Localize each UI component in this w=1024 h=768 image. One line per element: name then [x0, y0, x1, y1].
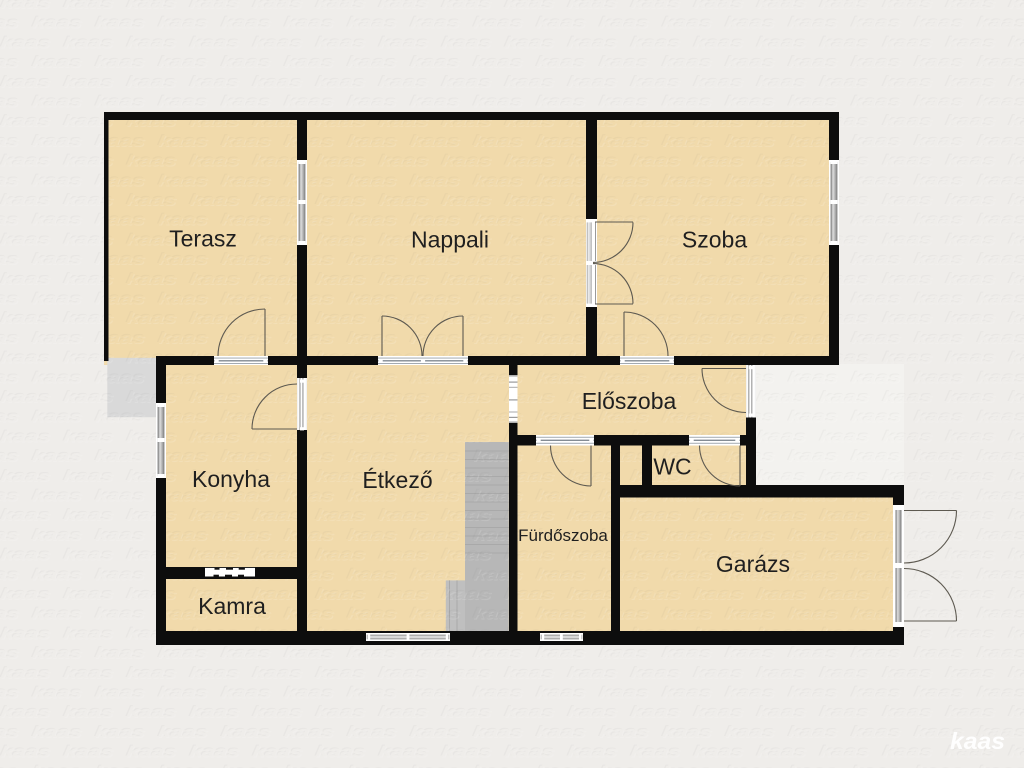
svg-text:kaas: kaas	[1007, 704, 1024, 721]
svg-text:kaas: kaas	[692, 153, 744, 170]
svg-text:kaas: kaas	[220, 369, 272, 386]
svg-text:kaas: kaas	[220, 685, 272, 702]
svg-text:kaas: kaas	[472, 133, 524, 150]
svg-text:kaas: kaas	[535, 724, 587, 741]
svg-text:kaas: kaas	[787, 54, 839, 71]
svg-text:kaas: kaas	[661, 763, 713, 768]
svg-text:kaas: kaas	[913, 133, 965, 150]
svg-text:kaas: kaas	[913, 251, 965, 268]
svg-text:kaas: kaas	[409, 172, 461, 189]
svg-text:kaas: kaas	[314, 428, 366, 445]
svg-text:kaas: kaas	[0, 448, 20, 465]
svg-text:kaas: kaas	[94, 527, 146, 544]
svg-text:kaas: kaas	[598, 724, 650, 741]
svg-text:kaas: kaas	[377, 744, 429, 761]
svg-text:kaas: kaas	[94, 606, 146, 623]
svg-text:kaas: kaas	[818, 744, 870, 761]
svg-text:kaas: kaas	[976, 54, 1024, 71]
svg-text:kaas: kaas	[188, 74, 240, 91]
svg-text:kaas: kaas	[535, 448, 587, 465]
svg-text:kaas: kaas	[0, 645, 20, 662]
svg-text:kaas: kaas	[0, 547, 52, 564]
svg-text:kaas: kaas	[976, 133, 1024, 150]
svg-text:kaas: kaas	[31, 172, 83, 189]
svg-text:kaas: kaas	[62, 507, 114, 524]
svg-text:kaas: kaas	[377, 507, 429, 524]
svg-text:kaas: kaas	[1007, 586, 1024, 603]
svg-text:kaas: kaas	[913, 330, 965, 347]
svg-text:kaas: kaas	[1007, 389, 1024, 406]
svg-text:kaas: kaas	[724, 54, 776, 71]
svg-text:kaas: kaas	[1007, 113, 1024, 130]
svg-text:kaas: kaas	[125, 744, 177, 761]
svg-text:kaas: kaas	[31, 330, 83, 347]
svg-text:kaas: kaas	[724, 172, 776, 189]
svg-text:kaas: kaas	[755, 428, 807, 445]
svg-text:kaas: kaas	[283, 448, 335, 465]
svg-text:kaas: kaas	[503, 665, 555, 682]
svg-text:kaas: kaas	[0, 409, 20, 426]
svg-text:kaas: kaas	[881, 547, 933, 564]
svg-text:kaas: kaas	[409, 409, 461, 426]
svg-text:kaas: kaas	[535, 15, 587, 32]
svg-text:kaas: kaas	[94, 172, 146, 189]
svg-text:kaas: kaas	[913, 645, 965, 662]
svg-text:kaas: kaas	[0, 369, 20, 386]
svg-text:kaas: kaas	[913, 54, 965, 71]
svg-text:kaas: kaas	[503, 34, 555, 51]
svg-text:kaas: kaas	[692, 192, 744, 209]
svg-text:kaas: kaas	[409, 251, 461, 268]
svg-text:kaas: kaas	[472, 15, 524, 32]
svg-text:kaas: kaas	[755, 310, 807, 327]
svg-text:kaas: kaas	[787, 448, 839, 465]
svg-text:kaas: kaas	[125, 586, 177, 603]
svg-text:kaas: kaas	[62, 74, 114, 91]
svg-text:kaas: kaas	[944, 507, 996, 524]
svg-text:kaas: kaas	[881, 744, 933, 761]
svg-text:kaas: kaas	[566, 0, 618, 12]
svg-text:kaas: kaas	[755, 231, 807, 248]
svg-text:kaas: kaas	[881, 665, 933, 682]
svg-text:kaas: kaas	[692, 744, 744, 761]
svg-text:kaas: kaas	[377, 74, 429, 91]
svg-text:kaas: kaas	[440, 586, 492, 603]
svg-text:kaas: kaas	[881, 113, 933, 130]
svg-text:kaas: kaas	[283, 606, 335, 623]
svg-text:kaas: kaas	[314, 0, 366, 12]
svg-text:kaas: kaas	[0, 54, 20, 71]
svg-text:kaas: kaas	[62, 0, 114, 12]
svg-text:kaas: kaas	[1007, 665, 1024, 682]
svg-text:kaas: kaas	[125, 507, 177, 524]
svg-text:kaas: kaas	[125, 428, 177, 445]
svg-text:Nappali: Nappali	[411, 227, 489, 253]
svg-text:kaas: kaas	[950, 728, 1005, 754]
svg-text:kaas: kaas	[346, 54, 398, 71]
svg-text:kaas: kaas	[976, 763, 1024, 768]
svg-text:kaas: kaas	[125, 0, 177, 12]
svg-text:kaas: kaas	[1007, 507, 1024, 524]
svg-text:kaas: kaas	[724, 606, 776, 623]
svg-text:kaas: kaas	[598, 645, 650, 662]
svg-text:kaas: kaas	[818, 428, 870, 445]
svg-text:kaas: kaas	[598, 685, 650, 702]
svg-text:kaas: kaas	[629, 153, 681, 170]
svg-text:kaas: kaas	[629, 507, 681, 524]
svg-text:kaas: kaas	[692, 586, 744, 603]
svg-text:Előszoba: Előszoba	[582, 388, 677, 414]
svg-text:kaas: kaas	[1007, 231, 1024, 248]
svg-text:kaas: kaas	[850, 94, 902, 111]
svg-text:kaas: kaas	[94, 291, 146, 308]
svg-text:kaas: kaas	[409, 566, 461, 583]
svg-text:kaas: kaas	[850, 172, 902, 189]
svg-text:kaas: kaas	[346, 685, 398, 702]
svg-text:kaas: kaas	[0, 586, 52, 603]
svg-text:kaas: kaas	[1007, 74, 1024, 91]
svg-text:kaas: kaas	[535, 488, 587, 505]
svg-text:kaas: kaas	[976, 606, 1024, 623]
svg-text:kaas: kaas	[31, 94, 83, 111]
svg-text:kaas: kaas	[94, 763, 146, 768]
svg-text:kaas: kaas	[346, 172, 398, 189]
svg-text:kaas: kaas	[346, 409, 398, 426]
svg-text:kaas: kaas	[535, 369, 587, 386]
svg-text:kaas: kaas	[1007, 468, 1024, 485]
svg-text:kaas: kaas	[188, 665, 240, 682]
svg-text:kaas: kaas	[976, 645, 1024, 662]
svg-text:kaas: kaas	[818, 192, 870, 209]
svg-text:Terasz: Terasz	[169, 226, 237, 252]
svg-text:kaas: kaas	[598, 291, 650, 308]
svg-text:kaas: kaas	[0, 665, 52, 682]
svg-text:kaas: kaas	[472, 54, 524, 71]
svg-text:kaas: kaas	[566, 704, 618, 721]
svg-text:kaas: kaas	[283, 212, 335, 229]
svg-text:kaas: kaas	[31, 645, 83, 662]
svg-text:kaas: kaas	[409, 645, 461, 662]
svg-text:kaas: kaas	[62, 704, 114, 721]
svg-text:kaas: kaas	[0, 310, 52, 327]
svg-text:kaas: kaas	[157, 330, 209, 347]
svg-text:kaas: kaas	[566, 74, 618, 91]
svg-text:kaas: kaas	[535, 685, 587, 702]
svg-text:kaas: kaas	[220, 172, 272, 189]
svg-text:kaas: kaas	[377, 389, 429, 406]
svg-text:kaas: kaas	[94, 133, 146, 150]
svg-text:kaas: kaas	[0, 153, 52, 170]
svg-text:kaas: kaas	[850, 685, 902, 702]
svg-text:kaas: kaas	[94, 251, 146, 268]
svg-text:kaas: kaas	[976, 212, 1024, 229]
svg-text:kaas: kaas	[0, 566, 20, 583]
svg-text:kaas: kaas	[188, 271, 240, 288]
svg-text:kaas: kaas	[62, 547, 114, 564]
svg-text:kaas: kaas	[1007, 271, 1024, 288]
svg-text:kaas: kaas	[314, 507, 366, 524]
svg-text:kaas: kaas	[220, 15, 272, 32]
svg-text:kaas: kaas	[377, 310, 429, 327]
svg-text:kaas: kaas	[94, 369, 146, 386]
svg-text:kaas: kaas	[346, 15, 398, 32]
svg-text:kaas: kaas	[566, 586, 618, 603]
svg-text:kaas: kaas	[283, 15, 335, 32]
svg-text:kaas: kaas	[598, 369, 650, 386]
svg-text:kaas: kaas	[881, 192, 933, 209]
svg-text:kaas: kaas	[629, 231, 681, 248]
svg-text:kaas: kaas	[220, 409, 272, 426]
svg-text:kaas: kaas	[755, 744, 807, 761]
svg-text:kaas: kaas	[818, 468, 870, 485]
svg-text:kaas: kaas	[31, 15, 83, 32]
svg-text:kaas: kaas	[535, 330, 587, 347]
svg-text:kaas: kaas	[629, 744, 681, 761]
svg-text:kaas: kaas	[881, 350, 933, 367]
svg-text:kaas: kaas	[409, 369, 461, 386]
svg-text:kaas: kaas	[692, 34, 744, 51]
svg-text:kaas: kaas	[377, 271, 429, 288]
svg-text:kaas: kaas	[409, 330, 461, 347]
svg-text:kaas: kaas	[283, 172, 335, 189]
svg-text:kaas: kaas	[913, 15, 965, 32]
svg-text:kaas: kaas	[598, 94, 650, 111]
svg-text:kaas: kaas	[566, 547, 618, 564]
svg-text:kaas: kaas	[976, 566, 1024, 583]
svg-text:kaas: kaas	[881, 586, 933, 603]
svg-text:kaas: kaas	[409, 133, 461, 150]
svg-text:kaas: kaas	[629, 586, 681, 603]
svg-text:kaas: kaas	[346, 527, 398, 544]
svg-text:kaas: kaas	[220, 645, 272, 662]
svg-text:kaas: kaas	[125, 192, 177, 209]
svg-text:kaas: kaas	[125, 271, 177, 288]
svg-text:kaas: kaas	[157, 251, 209, 268]
svg-text:kaas: kaas	[629, 547, 681, 564]
svg-text:kaas: kaas	[283, 645, 335, 662]
svg-text:kaas: kaas	[31, 724, 83, 741]
svg-text:kaas: kaas	[0, 34, 52, 51]
svg-text:kaas: kaas	[881, 704, 933, 721]
svg-text:kaas: kaas	[566, 507, 618, 524]
svg-text:kaas: kaas	[377, 704, 429, 721]
svg-text:kaas: kaas	[503, 0, 555, 12]
svg-text:Étkező: Étkező	[362, 467, 432, 493]
svg-text:kaas: kaas	[377, 192, 429, 209]
svg-text:kaas: kaas	[1007, 310, 1024, 327]
svg-text:kaas: kaas	[1007, 153, 1024, 170]
svg-text:kaas: kaas	[913, 527, 965, 544]
svg-text:kaas: kaas	[661, 724, 713, 741]
svg-text:kaas: kaas	[944, 428, 996, 445]
svg-text:kaas: kaas	[157, 763, 209, 768]
svg-text:kaas: kaas	[251, 310, 303, 327]
svg-text:kaas: kaas	[818, 310, 870, 327]
svg-text:kaas: kaas	[755, 0, 807, 12]
svg-text:Kamra: Kamra	[198, 593, 266, 619]
svg-text:kaas: kaas	[251, 192, 303, 209]
svg-text:kaas: kaas	[157, 15, 209, 32]
svg-text:kaas: kaas	[0, 488, 20, 505]
svg-text:kaas: kaas	[346, 566, 398, 583]
svg-text:kaas: kaas	[409, 685, 461, 702]
svg-text:kaas: kaas	[944, 350, 996, 367]
svg-text:kaas: kaas	[976, 685, 1024, 702]
svg-text:kaas: kaas	[724, 94, 776, 111]
svg-text:kaas: kaas	[1007, 625, 1024, 642]
svg-text:kaas: kaas	[724, 763, 776, 768]
svg-text:kaas: kaas	[220, 94, 272, 111]
svg-text:kaas: kaas	[31, 409, 83, 426]
svg-text:kaas: kaas	[377, 428, 429, 445]
svg-text:kaas: kaas	[314, 468, 366, 485]
svg-text:kaas: kaas	[755, 153, 807, 170]
svg-text:kaas: kaas	[755, 34, 807, 51]
svg-text:kaas: kaas	[125, 74, 177, 91]
svg-text:kaas: kaas	[503, 74, 555, 91]
svg-text:kaas: kaas	[976, 15, 1024, 32]
svg-text:kaas: kaas	[440, 507, 492, 524]
svg-text:kaas: kaas	[0, 15, 20, 32]
svg-text:kaas: kaas	[377, 586, 429, 603]
svg-text:kaas: kaas	[755, 704, 807, 721]
svg-text:kaas: kaas	[1007, 192, 1024, 209]
svg-text:kaas: kaas	[0, 527, 20, 544]
svg-text:kaas: kaas	[377, 153, 429, 170]
svg-text:kaas: kaas	[251, 744, 303, 761]
svg-text:kaas: kaas	[220, 724, 272, 741]
svg-text:kaas: kaas	[944, 310, 996, 327]
svg-text:kaas: kaas	[157, 724, 209, 741]
svg-text:kaas: kaas	[724, 685, 776, 702]
svg-text:kaas: kaas	[314, 310, 366, 327]
svg-text:kaas: kaas	[94, 409, 146, 426]
svg-text:kaas: kaas	[283, 763, 335, 768]
svg-text:kaas: kaas	[881, 153, 933, 170]
svg-text:kaas: kaas	[94, 448, 146, 465]
svg-text:kaas: kaas	[94, 645, 146, 662]
svg-text:kaas: kaas	[346, 645, 398, 662]
svg-text:kaas: kaas	[220, 291, 272, 308]
svg-text:kaas: kaas	[503, 310, 555, 327]
svg-text:kaas: kaas	[944, 34, 996, 51]
svg-text:kaas: kaas	[125, 468, 177, 485]
svg-text:kaas: kaas	[188, 34, 240, 51]
svg-text:kaas: kaas	[283, 527, 335, 544]
svg-text:kaas: kaas	[850, 409, 902, 426]
svg-text:kaas: kaas	[692, 74, 744, 91]
svg-text:kaas: kaas	[251, 428, 303, 445]
svg-text:kaas: kaas	[787, 369, 839, 386]
svg-text:kaas: kaas	[976, 409, 1024, 426]
svg-text:kaas: kaas	[0, 724, 20, 741]
svg-text:kaas: kaas	[976, 527, 1024, 544]
svg-text:kaas: kaas	[661, 251, 713, 268]
svg-text:kaas: kaas	[787, 15, 839, 32]
svg-text:kaas: kaas	[409, 724, 461, 741]
svg-text:kaas: kaas	[472, 685, 524, 702]
svg-text:kaas: kaas	[94, 94, 146, 111]
svg-text:kaas: kaas	[251, 74, 303, 91]
svg-text:kaas: kaas	[251, 0, 303, 12]
svg-text:kaas: kaas	[0, 0, 52, 12]
svg-text:Fürdőszoba: Fürdőszoba	[518, 526, 608, 545]
svg-text:kaas: kaas	[314, 547, 366, 564]
svg-text:kaas: kaas	[472, 724, 524, 741]
svg-text:kaas: kaas	[220, 133, 272, 150]
svg-text:kaas: kaas	[850, 645, 902, 662]
svg-text:kaas: kaas	[661, 645, 713, 662]
svg-text:kaas: kaas	[314, 34, 366, 51]
svg-text:kaas: kaas	[283, 291, 335, 308]
svg-text:kaas: kaas	[535, 172, 587, 189]
svg-text:kaas: kaas	[31, 763, 83, 768]
svg-text:kaas: kaas	[881, 310, 933, 327]
svg-text:kaas: kaas	[0, 192, 52, 209]
svg-text:kaas: kaas	[535, 54, 587, 71]
svg-text:kaas: kaas	[125, 34, 177, 51]
svg-text:kaas: kaas	[440, 74, 492, 91]
svg-text:kaas: kaas	[377, 547, 429, 564]
svg-text:kaas: kaas	[755, 74, 807, 91]
svg-text:kaas: kaas	[976, 251, 1024, 268]
svg-text:kaas: kaas	[850, 724, 902, 741]
svg-text:kaas: kaas	[818, 665, 870, 682]
svg-text:kaas: kaas	[787, 685, 839, 702]
svg-text:kaas: kaas	[94, 488, 146, 505]
svg-text:kaas: kaas	[535, 133, 587, 150]
svg-text:kaas: kaas	[598, 15, 650, 32]
svg-text:kaas: kaas	[283, 133, 335, 150]
svg-text:kaas: kaas	[0, 113, 52, 130]
svg-text:kaas: kaas	[472, 94, 524, 111]
svg-text:kaas: kaas	[1007, 547, 1024, 564]
svg-text:kaas: kaas	[755, 507, 807, 524]
svg-text:kaas: kaas	[724, 724, 776, 741]
svg-text:kaas: kaas	[755, 271, 807, 288]
svg-text:kaas: kaas	[0, 606, 20, 623]
svg-text:kaas: kaas	[944, 113, 996, 130]
svg-text:kaas: kaas	[976, 448, 1024, 465]
svg-text:kaas: kaas	[913, 94, 965, 111]
svg-text:kaas: kaas	[283, 409, 335, 426]
svg-text:kaas: kaas	[535, 763, 587, 768]
svg-text:kaas: kaas	[94, 212, 146, 229]
svg-text:kaas: kaas	[503, 704, 555, 721]
svg-text:kaas: kaas	[31, 566, 83, 583]
svg-text:kaas: kaas	[472, 291, 524, 308]
svg-text:Konyha: Konyha	[192, 466, 270, 492]
svg-text:kaas: kaas	[283, 369, 335, 386]
svg-text:kaas: kaas	[944, 468, 996, 485]
svg-text:kaas: kaas	[440, 665, 492, 682]
svg-text:kaas: kaas	[440, 34, 492, 51]
svg-text:kaas: kaas	[62, 625, 114, 642]
svg-text:kaas: kaas	[881, 34, 933, 51]
svg-text:kaas: kaas	[598, 172, 650, 189]
svg-text:kaas: kaas	[944, 74, 996, 91]
svg-text:kaas: kaas	[346, 291, 398, 308]
svg-text:kaas: kaas	[976, 330, 1024, 347]
svg-text:kaas: kaas	[755, 192, 807, 209]
svg-text:kaas: kaas	[818, 271, 870, 288]
svg-text:kaas: kaas	[976, 488, 1024, 505]
svg-text:kaas: kaas	[0, 74, 52, 91]
svg-text:kaas: kaas	[692, 310, 744, 327]
svg-text:kaas: kaas	[818, 153, 870, 170]
svg-text:kaas: kaas	[598, 54, 650, 71]
svg-text:kaas: kaas	[692, 271, 744, 288]
